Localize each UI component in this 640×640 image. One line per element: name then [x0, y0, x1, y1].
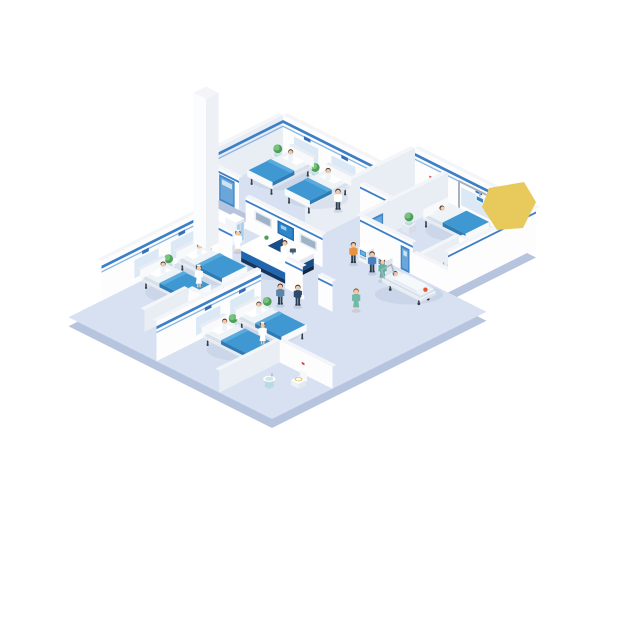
patient-figure [326, 168, 331, 180]
patient-figure [161, 261, 166, 273]
patient-figure [222, 319, 227, 331]
hospital-floor-illustration: P&H [0, 0, 640, 640]
patient-figure [288, 149, 293, 161]
patient-figure [256, 302, 261, 314]
structure-column [193, 86, 218, 249]
door-panel [401, 245, 410, 273]
isometric-hospital-scene: P&H [0, 0, 640, 640]
